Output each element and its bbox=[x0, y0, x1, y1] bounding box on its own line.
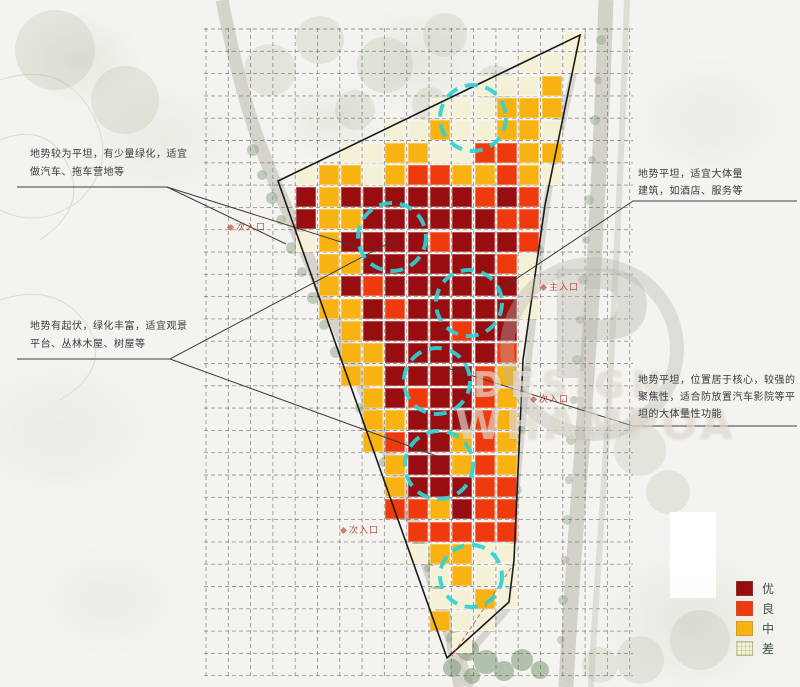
legend: 优 良 中 差 bbox=[736, 578, 775, 658]
legend-label: 中 bbox=[762, 620, 775, 637]
legend-item: 差 bbox=[736, 638, 775, 658]
annotation-text: 地势有起伏，绿化丰富，适宜观景 bbox=[30, 318, 188, 336]
legend-label: 良 bbox=[762, 600, 775, 617]
legend-label: 差 bbox=[762, 640, 775, 657]
legend-label: 优 bbox=[762, 580, 775, 597]
site-analysis-diagram: P DESIGN WHAMPOA 地势较为平坦，有少量绿化，适宜 做汽车、拖车营… bbox=[0, 0, 800, 687]
annotation-text: 做汽车、拖车营地等 bbox=[30, 164, 188, 182]
leader-line bbox=[170, 359, 442, 458]
leader-line bbox=[17, 187, 360, 248]
annotation-text: 建筑，如酒店、服务等 bbox=[638, 183, 743, 200]
legend-swatch-excellent bbox=[736, 581, 753, 596]
highlight-circle bbox=[436, 270, 502, 336]
annotation-text: 坦的大体量性功能 bbox=[638, 406, 796, 423]
annotation-text: 地势平坦，位置居于核心，较强的 bbox=[638, 372, 796, 389]
annotation-text: 地势平坦，适宜大体量 bbox=[638, 166, 743, 183]
annotation-left-top: 地势较为平坦，有少量绿化，适宜 做汽车、拖车营地等 bbox=[30, 146, 188, 182]
leader-line bbox=[167, 187, 286, 244]
annotation-text: 地势较为平坦，有少量绿化，适宜 bbox=[30, 146, 188, 164]
legend-item: 良 bbox=[736, 598, 775, 618]
legend-item: 优 bbox=[736, 578, 775, 598]
annotation-right-mid: 地势平坦，位置居于核心，较强的 聚焦性，适合防放置汽车影院等平 坦的大体量性功能 bbox=[638, 372, 796, 423]
blank-patch bbox=[670, 512, 716, 598]
legend-swatch-poor bbox=[736, 641, 753, 656]
entrance-label: 次入口 bbox=[531, 392, 569, 405]
annotation-text: 平台、丛林木屋、树屋等 bbox=[30, 336, 188, 354]
highlight-circle bbox=[358, 203, 426, 271]
legend-swatch-medium bbox=[736, 621, 753, 636]
entrance-label: 次入口 bbox=[341, 523, 379, 536]
entrance-label: 主入口 bbox=[541, 280, 579, 293]
annotation-right-top: 地势平坦，适宜大体量 建筑，如酒店、服务等 bbox=[638, 166, 743, 200]
entrance-label: 次入口 bbox=[228, 220, 266, 233]
annotation-text: 聚焦性，适合防放置汽车影院等平 bbox=[638, 389, 796, 406]
legend-swatch-good bbox=[736, 601, 753, 616]
highlight-circle bbox=[440, 545, 502, 607]
annotation-left-mid: 地势有起伏，绿化丰富，适宜观景 平台、丛林木屋、树屋等 bbox=[30, 318, 188, 354]
highlight-circle bbox=[440, 85, 506, 151]
legend-item: 中 bbox=[736, 618, 775, 638]
